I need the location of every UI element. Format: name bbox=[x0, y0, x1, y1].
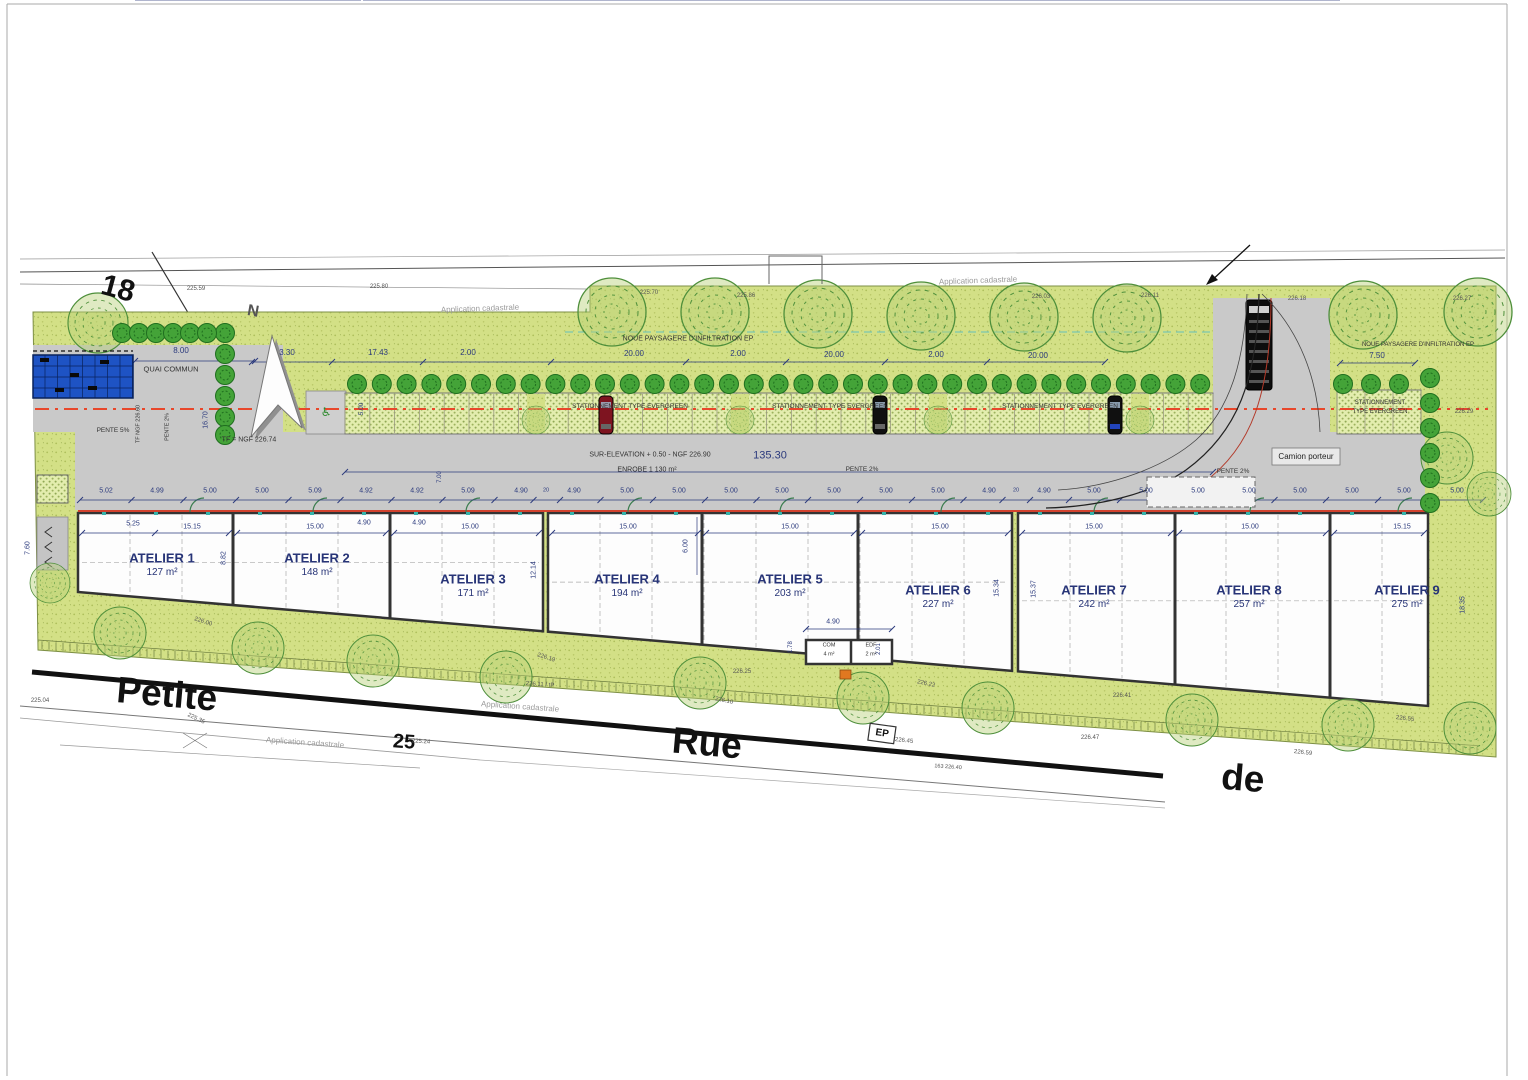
site-plan-drawing bbox=[0, 0, 1528, 1080]
site-plan-sheet: { "colors": { "grass": "#d3e086", "grass… bbox=[0, 0, 1528, 1080]
